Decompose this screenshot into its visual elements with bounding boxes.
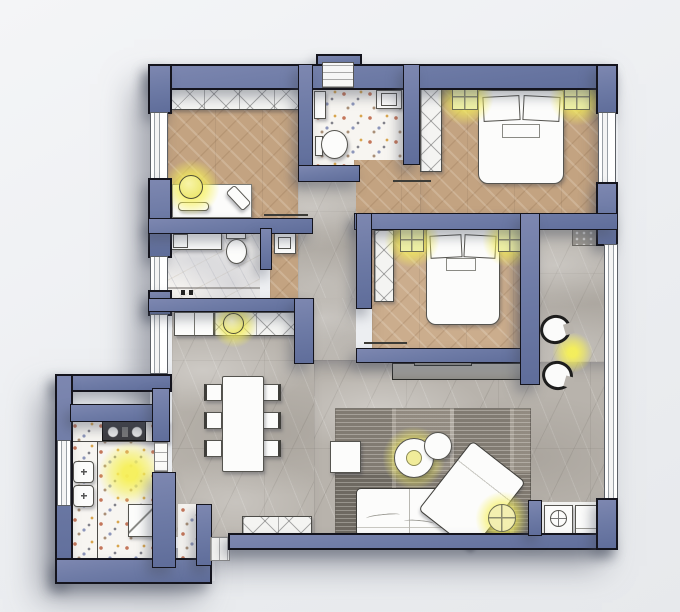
washing-machine-drum: [550, 510, 567, 527]
wall-right-p1: [596, 64, 618, 114]
wall-bedrooms-long: [354, 213, 618, 230]
square-side-table: [330, 441, 361, 473]
wall-kitchen-right-upper: [152, 388, 170, 442]
bedroom2-ceiling-light-left: [400, 228, 424, 252]
entry-decor-lamp: [223, 313, 244, 334]
window-bedroom1-right: [598, 112, 616, 184]
dining-chair-l2: [204, 412, 222, 429]
dining-table: [222, 376, 264, 472]
bedroom2-door-leaf: [364, 342, 407, 344]
bed1-throw: [502, 124, 540, 138]
coffee-table-inner: [406, 450, 422, 466]
fridge: [128, 504, 154, 537]
shower-knob-1: [181, 290, 185, 295]
wall-right-p2: [596, 498, 618, 550]
corridor-floor-2: [314, 298, 356, 368]
kitchen-hob: [102, 421, 146, 441]
office-keyboard: [178, 202, 209, 211]
bed2-pillow-left: [429, 234, 462, 259]
window-wc-left: [150, 256, 168, 292]
floor-lamp: [488, 504, 516, 532]
wall-office-south: [148, 218, 313, 234]
toilet-bathroom: [321, 130, 348, 159]
floor-plan: [0, 0, 680, 612]
round-side-table: [424, 432, 452, 460]
bathroom-sink-bowl: [381, 93, 397, 106]
corridor-floor: [298, 172, 356, 300]
desk-lamp: [179, 175, 203, 199]
wall-office-bath: [298, 64, 313, 172]
bathroom-shelf: [314, 91, 326, 119]
shower-knob-2: [189, 290, 193, 295]
office-door-leaf: [264, 214, 308, 216]
bed2-throw: [446, 258, 476, 271]
wc-vanity-sink: [173, 234, 188, 248]
duct-shaft: [322, 62, 354, 88]
dining-chair-r3: [263, 440, 281, 457]
dining-chair-l1: [204, 384, 222, 401]
wall-kitchen-right-lower: [152, 472, 176, 568]
wall-bedroom2-west: [356, 213, 372, 309]
window-entry-left: [150, 314, 168, 374]
balcony-door-gap: [210, 537, 230, 561]
window-office-left: [150, 112, 168, 180]
entry-cabinet: [174, 312, 214, 336]
shower-threshold: [168, 287, 260, 289]
wall-top: [148, 64, 618, 90]
kitchen-sink-cross-2: [81, 493, 87, 499]
wall-left-p1: [148, 64, 172, 114]
bedroom2-wardrobe: [374, 230, 394, 302]
wall-bath-east: [403, 64, 420, 165]
wall-bath-south: [298, 165, 360, 182]
bedroom1-wardrobe: [420, 86, 442, 172]
dining-chair-r1: [263, 384, 281, 401]
bathroom-door-leaf: [393, 180, 431, 182]
wall-bedroom2-east: [520, 213, 540, 385]
bed1-pillow-left: [482, 95, 520, 122]
bed2-pillow-right: [463, 234, 496, 259]
wall-niche-stub: [528, 500, 542, 536]
wall-bedroom2-south: [356, 348, 526, 363]
dining-chair-l3: [204, 440, 222, 457]
kitchen-sink-cross-1: [81, 469, 87, 475]
pantry-floor: [178, 504, 198, 558]
wall-wc-south: [148, 298, 314, 312]
toilet-wc: [226, 239, 247, 264]
window-kitchen-left: [57, 440, 71, 506]
floor-plan-screenshot: [0, 0, 680, 612]
wall-kitchen-bottom: [55, 558, 212, 584]
bedroom2-ceiling-light-right: [498, 228, 522, 252]
dining-chair-r2: [263, 412, 281, 429]
wall-wc-east: [260, 228, 272, 270]
bed1-pillow-right: [522, 95, 560, 122]
window-living-right: [604, 244, 618, 500]
kitchen-door-opening: [154, 442, 168, 472]
wall-bottom-main: [228, 533, 618, 550]
hall-washbasin-bowl: [278, 237, 291, 249]
wall-entry-block: [294, 298, 314, 364]
